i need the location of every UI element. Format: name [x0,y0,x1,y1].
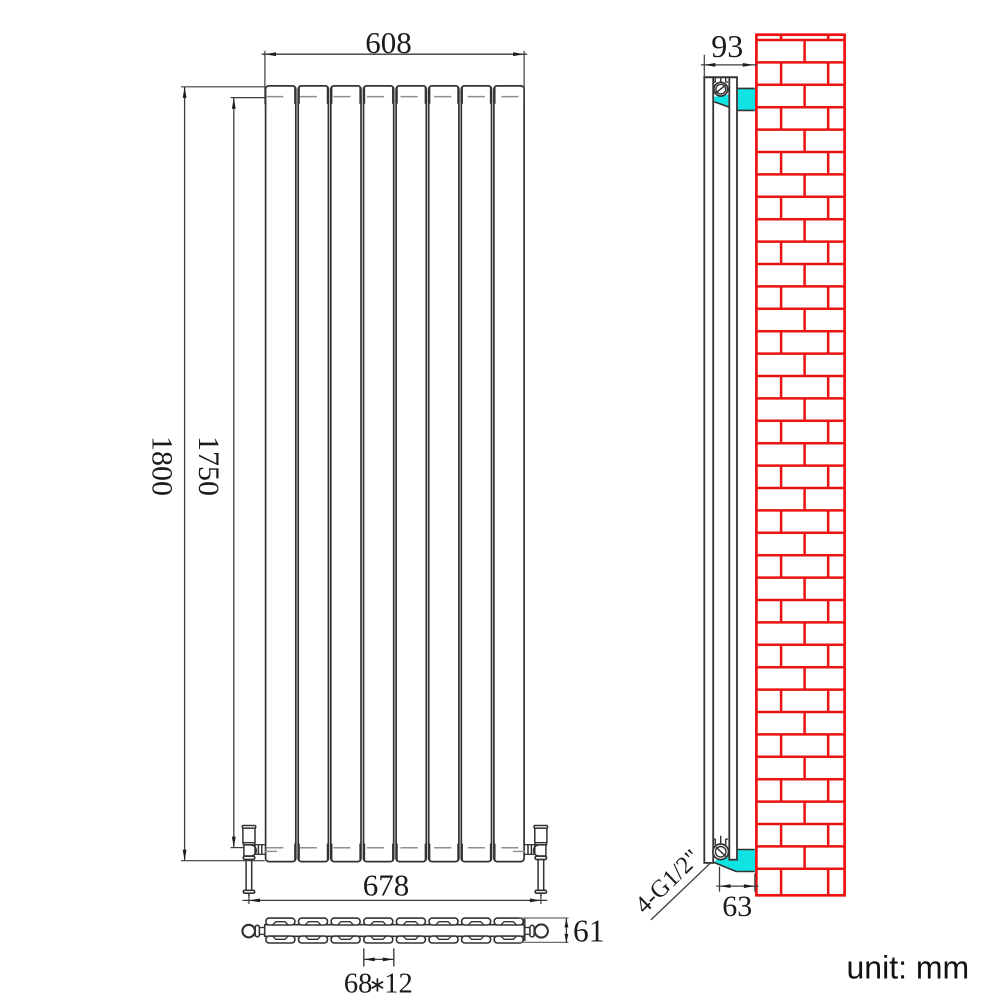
svg-text:63: 63 [722,890,752,923]
svg-text:608: 608 [365,25,412,60]
svg-text:678: 678 [363,867,410,902]
svg-text:unit: mm: unit: mm [847,950,970,986]
svg-text:61: 61 [573,913,605,948]
svg-text:1800: 1800 [145,436,178,496]
svg-text:1750: 1750 [192,436,225,496]
svg-text:12: 12 [384,968,413,999]
svg-text:93: 93 [711,28,743,64]
